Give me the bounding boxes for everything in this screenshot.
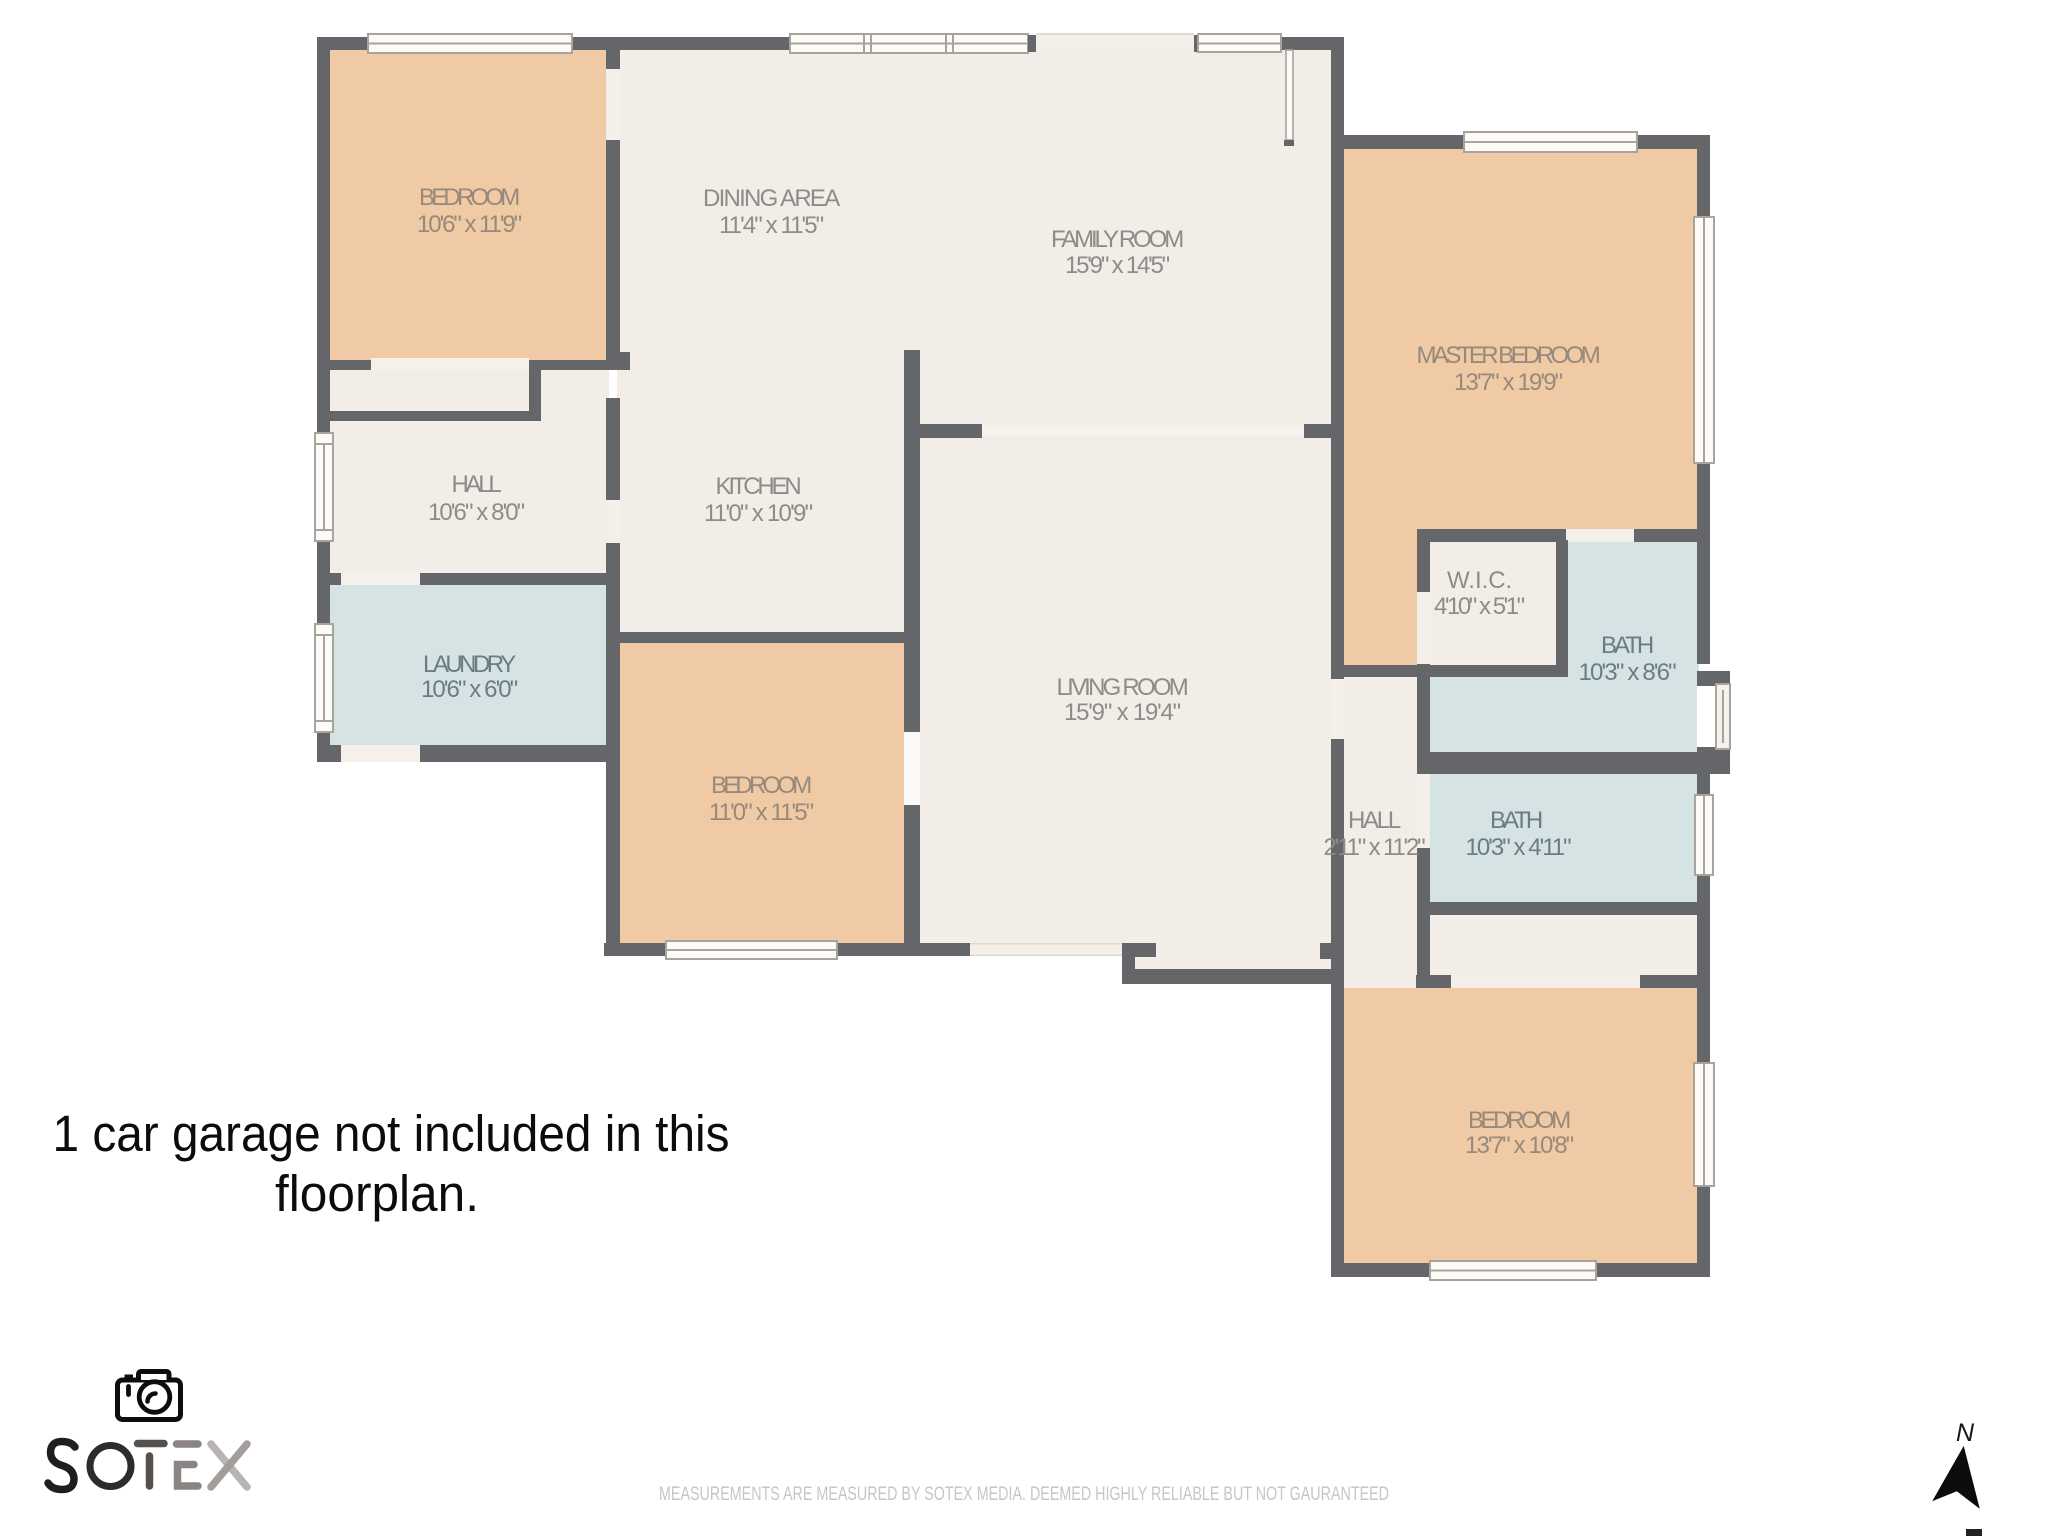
svg-text:4'10" x 5'1": 4'10" x 5'1": [1434, 593, 1526, 620]
svg-text:BEDROOM: BEDROOM: [1468, 1107, 1572, 1134]
svg-text:HALL: HALL: [1348, 807, 1402, 834]
svg-text:MEASUREMENTS ARE MEASURED BY S: MEASUREMENTS ARE MEASURED BY SOTEX MEDIA…: [659, 1484, 1389, 1505]
svg-text:BEDROOM: BEDROOM: [711, 772, 813, 799]
svg-text:11'4" x 11'5": 11'4" x 11'5": [719, 212, 825, 239]
svg-text:11'0" x 10'9": 11'0" x 10'9": [704, 500, 814, 527]
svg-text:LAUNDRY: LAUNDRY: [423, 651, 517, 678]
svg-text:BATH: BATH: [1601, 632, 1655, 659]
svg-text:2'11" x 11'2": 2'11" x 11'2": [1324, 834, 1427, 861]
svg-text:13'7" x 19'9": 13'7" x 19'9": [1454, 369, 1564, 396]
svg-text:15'9" x 19'4": 15'9" x 19'4": [1064, 699, 1182, 726]
svg-text:13'7" x 10'8": 13'7" x 10'8": [1465, 1132, 1575, 1159]
svg-text:HALL: HALL: [452, 471, 503, 498]
svg-text:N: N: [1956, 1419, 1975, 1447]
svg-text:10'3" x 8'6": 10'3" x 8'6": [1579, 659, 1678, 686]
svg-text:10'3" x 4'11": 10'3" x 4'11": [1466, 834, 1573, 861]
svg-text:MASTER BEDROOM: MASTER BEDROOM: [1417, 342, 1602, 369]
svg-text:W.I.C.: W.I.C.: [1447, 567, 1513, 594]
svg-text:LIVING ROOM: LIVING ROOM: [1057, 674, 1190, 701]
svg-text:BATH: BATH: [1490, 807, 1544, 834]
svg-text:floorplan.: floorplan.: [275, 1165, 479, 1222]
svg-text:15'9" x 14'5": 15'9" x 14'5": [1065, 252, 1171, 279]
svg-text:10'6" x 11'9": 10'6" x 11'9": [417, 211, 523, 238]
svg-text:KITCHEN: KITCHEN: [716, 473, 803, 500]
svg-text:BEDROOM: BEDROOM: [419, 184, 521, 211]
svg-text:1 car garage not included in t: 1 car garage not included in this: [53, 1105, 730, 1162]
svg-text:10'6" x 8'0": 10'6" x 8'0": [428, 499, 526, 526]
svg-text:11'0" x 11'5": 11'0" x 11'5": [709, 799, 815, 826]
svg-text:10'6" x 6'0": 10'6" x 6'0": [421, 676, 519, 703]
svg-text:FAMILY ROOM: FAMILY ROOM: [1051, 226, 1185, 253]
svg-text:DINING AREA: DINING AREA: [703, 185, 841, 212]
